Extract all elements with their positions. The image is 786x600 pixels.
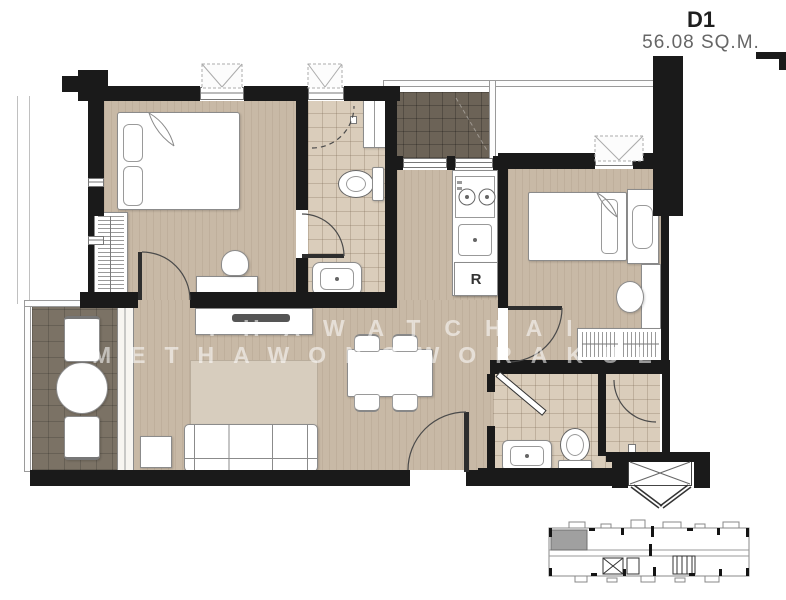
wall-bathroom1-left-lower [296, 258, 308, 298]
window-bathroom1 [308, 87, 344, 100]
wall-bedroom1-bottom-right [190, 292, 397, 308]
wall-shower2-divider [598, 374, 606, 456]
window-bedroom1 [200, 87, 244, 100]
planter-symbol [308, 64, 342, 88]
dining-table [347, 349, 433, 397]
chair-master [221, 250, 249, 276]
unit-label: D1 [616, 8, 786, 32]
dining-chair [354, 334, 380, 352]
faucet-1 [335, 277, 339, 281]
balcony-table [56, 362, 108, 414]
hanger-rail [98, 216, 124, 294]
wall-corner-topleft-2 [62, 76, 78, 92]
wall-ledge-top [606, 452, 710, 462]
ac-ledge-box [628, 459, 692, 486]
wall-bottom-main [30, 470, 410, 486]
nightstand-second [632, 205, 653, 249]
keyplan-unit-highlight [551, 530, 587, 550]
wall-column-right [653, 56, 683, 216]
wall-ledge-pillar-right [694, 462, 710, 488]
planter-symbol [202, 64, 242, 88]
balcony-sliding-door [117, 300, 134, 470]
dining-chair [354, 394, 380, 412]
title-block: D1 56.08 SQ.M. [616, 8, 786, 55]
hanger-rail [623, 332, 659, 357]
wall-bathroom2-left-a [487, 374, 495, 392]
toilet-bowl-2-inner [566, 434, 584, 456]
balcony-railing-left [24, 300, 31, 472]
sofa [184, 424, 318, 472]
pillow [123, 124, 143, 162]
wall-kitchen-top-2 [447, 156, 455, 170]
ac-louvers [631, 485, 691, 508]
balcony-chair [64, 316, 100, 362]
toilet-tank-1 [372, 167, 384, 201]
wardrobe-master [94, 212, 128, 298]
terrace-floor [390, 92, 493, 158]
desk-second [641, 264, 661, 338]
hanger-rail [582, 332, 618, 357]
balcony-chair [64, 416, 100, 460]
shower-drain-1 [350, 116, 357, 124]
wall-bathroom2-right [662, 374, 670, 456]
wall-bedroom2-left [498, 156, 508, 308]
kitchen-faucet [473, 238, 477, 242]
chair-second [616, 281, 644, 313]
wall-ledge-pillar-left [612, 462, 628, 488]
wall-left-upper [88, 86, 104, 216]
wall-bedroom2-top-left [498, 153, 595, 169]
refrigerator: R [454, 262, 498, 296]
window-kitchen-2 [455, 158, 493, 168]
pillow [601, 199, 618, 254]
keyplan [545, 514, 757, 594]
wall-bathroom1-left-upper [296, 86, 308, 210]
window-kitchen-1 [403, 158, 447, 168]
balcony-railing-top [24, 300, 86, 307]
side-ledge-left [17, 96, 30, 304]
window-bedroom2 [595, 156, 633, 166]
dining-chair [392, 334, 418, 352]
wall-bedroom2-right [661, 212, 669, 362]
wall-bathroom1-right [385, 86, 397, 308]
wardrobe-second [577, 328, 663, 361]
terrace-railing-top [383, 80, 655, 87]
toilet-bowl-1-inner [346, 176, 366, 192]
side-table [140, 436, 172, 468]
cooktop [455, 176, 495, 218]
faucet-2 [525, 454, 529, 458]
wall-bathroom2-left-b [487, 426, 495, 472]
pillow [123, 166, 143, 206]
area-label: 56.08 SQ.M. [616, 32, 786, 55]
wall-bathroom2-top [490, 360, 670, 374]
refrigerator-label: R [471, 271, 482, 288]
wall-bedroom1-bottom-left [80, 292, 138, 308]
tv [232, 314, 290, 322]
terrace-railing-right [489, 80, 496, 164]
window-left-wall-a [88, 178, 104, 187]
wall-bathroom2-bottom [478, 468, 614, 486]
rug [190, 360, 318, 428]
floorplan-page: D1 56.08 SQ.M. [0, 0, 786, 600]
window-left-wall-b [88, 236, 104, 245]
dining-chair [392, 394, 418, 412]
